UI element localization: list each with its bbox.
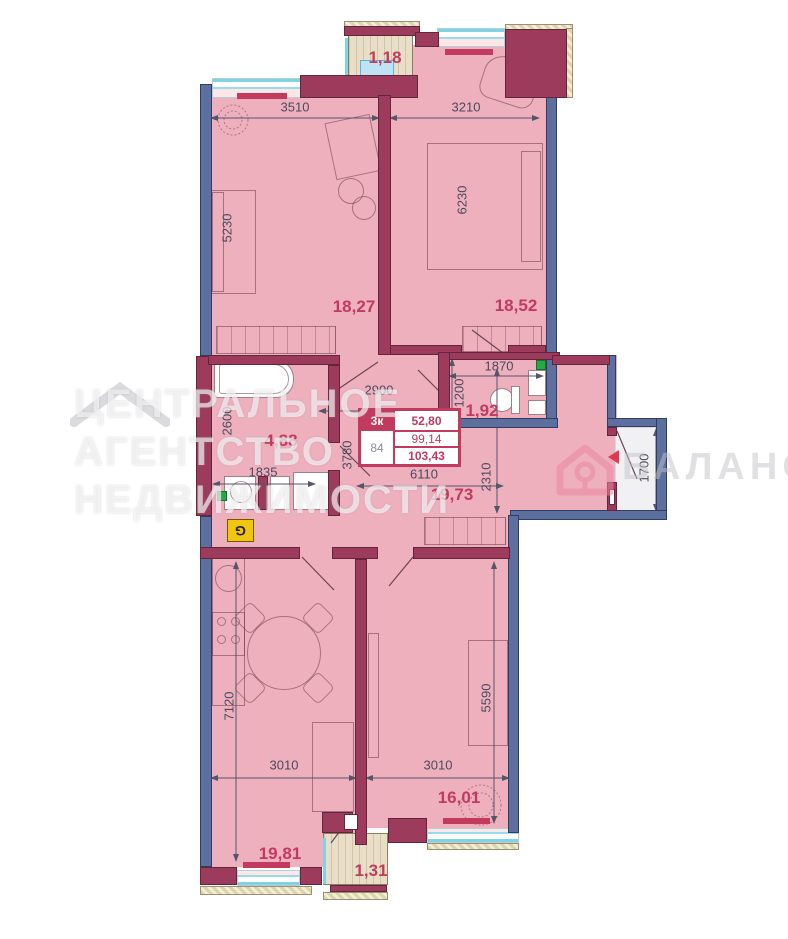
stamp-total-area: 103,43 bbox=[394, 447, 459, 465]
pier-entry-top bbox=[607, 427, 617, 436]
dim-bath-depth: 2600 bbox=[220, 407, 235, 436]
area-room3: 16,01 bbox=[438, 788, 481, 808]
stamp-apartment-number: 84 bbox=[360, 431, 394, 465]
entry-niche bbox=[609, 489, 615, 505]
wall-balcony-top bbox=[344, 26, 420, 36]
wall-kitchen-room3-divider bbox=[355, 559, 367, 845]
radiator-room3 bbox=[443, 818, 490, 824]
wall-entry-north bbox=[552, 355, 610, 365]
tv-console-room3 bbox=[368, 633, 379, 758]
window-room3 bbox=[427, 828, 519, 843]
wall-under-balcony bbox=[300, 75, 418, 98]
dim-kitchen-depth: 7120 bbox=[222, 692, 237, 721]
dim-bedroom2-width: 3210 bbox=[452, 100, 481, 115]
area-bathroom: 4,88 bbox=[264, 431, 297, 451]
bathtub-inner bbox=[219, 364, 289, 394]
agency-roof-watermark-icon bbox=[70, 382, 170, 444]
dim-bath-width: 1835 bbox=[249, 465, 278, 480]
dim-kitchen-width: 3010 bbox=[270, 758, 299, 773]
dim-wc-width: 1870 bbox=[485, 359, 514, 374]
stove-burner-3 bbox=[217, 635, 226, 644]
window-bedroom2 bbox=[437, 28, 505, 47]
dim-hall-width-top: 2900 bbox=[365, 383, 394, 398]
bed-bedroom2-headboard bbox=[521, 151, 541, 262]
stamp-room-count: 3к bbox=[360, 410, 394, 431]
apartment-stamp: 3к 52,80 99,14 84 103,43 bbox=[358, 408, 461, 467]
wall-right-room3 bbox=[508, 515, 519, 833]
wardrobe-bedroom1 bbox=[216, 326, 336, 354]
wc-shelf-top bbox=[528, 370, 546, 396]
area-balcony-bottom: 1,31 bbox=[354, 861, 387, 881]
area-balcony-top: 1,18 bbox=[368, 48, 401, 68]
dim-hall-depth: 3780 bbox=[340, 441, 355, 470]
wall-bath-west bbox=[196, 356, 212, 516]
hall-closet bbox=[424, 517, 506, 545]
balcony-top-glazing bbox=[345, 38, 348, 78]
dim-bedroom2-depth: 6230 bbox=[455, 186, 470, 215]
area-kitchen-living: 19,81 bbox=[259, 844, 302, 864]
area-bedroom1: 18,27 bbox=[333, 297, 376, 317]
stove-burner-1 bbox=[217, 617, 226, 626]
wall-balcony-bottom-right bbox=[388, 818, 427, 843]
radiator-bedroom2 bbox=[445, 49, 493, 55]
area-bedroom2: 18,52 bbox=[495, 296, 538, 316]
bath-sink bbox=[270, 476, 290, 510]
wall-kitchen-north-2 bbox=[332, 547, 378, 559]
area-hall: 19,73 bbox=[431, 485, 474, 505]
wall-left-top bbox=[200, 84, 212, 356]
kitchen-sink bbox=[215, 565, 242, 592]
gas-marker-glyph: G bbox=[235, 523, 246, 539]
dim-hall-width: 6110 bbox=[410, 467, 438, 482]
sill-balcony-bottom bbox=[323, 892, 388, 900]
wall-left-bottom bbox=[200, 516, 212, 867]
wall-corner-ne bbox=[505, 29, 567, 98]
sill-corner-ne-side bbox=[566, 28, 573, 98]
radiator-bedroom1 bbox=[237, 93, 287, 99]
entrance-door-marker bbox=[608, 450, 619, 464]
wall-bottom-vestibule bbox=[510, 510, 667, 520]
window-kitchen bbox=[237, 870, 300, 886]
dim-entry-depth: 1700 bbox=[637, 454, 652, 483]
dim-bedroom1-width: 3510 bbox=[281, 100, 310, 115]
floor-plan: G bbox=[0, 0, 788, 939]
rug-bedroom1 bbox=[352, 196, 376, 220]
dim-room3-width: 3010 bbox=[424, 758, 453, 773]
pier-kitchen-south bbox=[300, 867, 322, 885]
wall-kitchen-south-left bbox=[200, 867, 237, 885]
balcony-door-leaf-panel bbox=[344, 814, 358, 830]
wall-vestibule-right bbox=[656, 418, 667, 515]
toilet-tank bbox=[511, 386, 520, 414]
dim-hall-right-depth: 2310 bbox=[479, 463, 494, 492]
vent-dot-bathroom bbox=[217, 491, 227, 501]
dim-bedroom1-depth: 5230 bbox=[220, 214, 235, 243]
stove-burner-4 bbox=[231, 635, 240, 644]
sofa-kitchen-living bbox=[312, 722, 354, 812]
stamp-living-area: 52,80 bbox=[394, 410, 459, 431]
wall-bath-east-lower bbox=[328, 470, 340, 516]
bath-cabinet bbox=[293, 472, 333, 510]
balcony-bottom-glazing bbox=[323, 838, 326, 884]
sill-room3-south bbox=[427, 843, 519, 850]
wall-entry-step bbox=[607, 355, 616, 427]
dim-wc-depth: 1200 bbox=[452, 379, 467, 408]
wc-shelf-bottom bbox=[528, 400, 546, 415]
wall-bath-east bbox=[328, 365, 340, 443]
wall-bedroom-divider bbox=[378, 95, 391, 355]
wall-bath-north bbox=[208, 355, 340, 365]
dim-room3-depth: 5590 bbox=[479, 684, 494, 713]
area-wc: 1,92 bbox=[465, 401, 498, 421]
gas-marker: G bbox=[227, 519, 254, 542]
wall-kitchen-north bbox=[200, 547, 300, 559]
stamp-area: 99,14 bbox=[394, 431, 459, 447]
pier-bedroom2-window bbox=[415, 32, 439, 47]
wall-right-bedroom2 bbox=[546, 88, 557, 428]
wall-room3-north bbox=[413, 547, 510, 559]
washing-machine-door bbox=[230, 481, 252, 503]
vent-dot-wc bbox=[536, 360, 546, 370]
sill-kitchen-south bbox=[200, 886, 312, 895]
bath-pier bbox=[258, 476, 268, 510]
wall-balcony-bottom-south bbox=[330, 885, 387, 892]
